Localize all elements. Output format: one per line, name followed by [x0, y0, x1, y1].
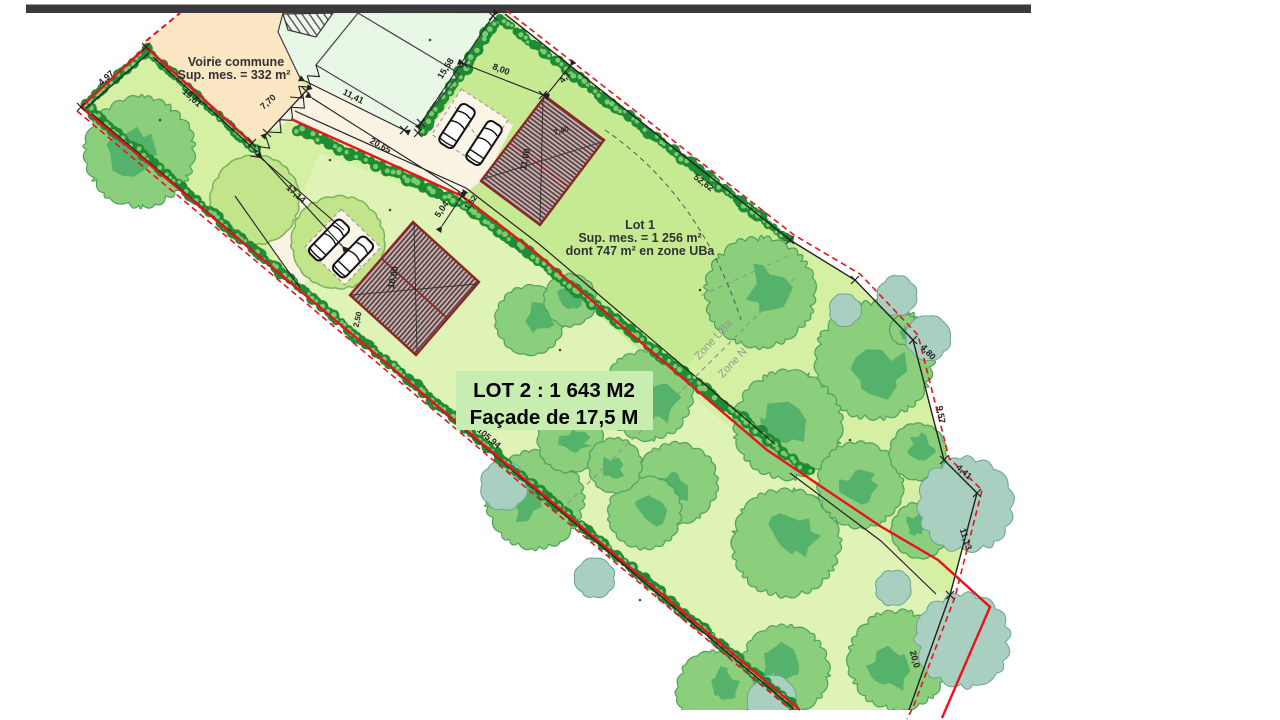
svg-text:Sup. mes. = 332 m²: Sup. mes. = 332 m² [178, 68, 291, 82]
svg-text:Voirie commune: Voirie commune [188, 55, 284, 69]
svg-text:Façade de 17,5 M: Façade de 17,5 M [470, 406, 639, 429]
svg-text:Sup. mes. = 1 256 m²: Sup. mes. = 1 256 m² [578, 231, 701, 245]
svg-text:Lot 1: Lot 1 [625, 218, 655, 232]
svg-text:dont 747 m² en zone UBa: dont 747 m² en zone UBa [566, 244, 716, 258]
svg-text:LOT 2 : 1 643 M2: LOT 2 : 1 643 M2 [473, 379, 635, 402]
